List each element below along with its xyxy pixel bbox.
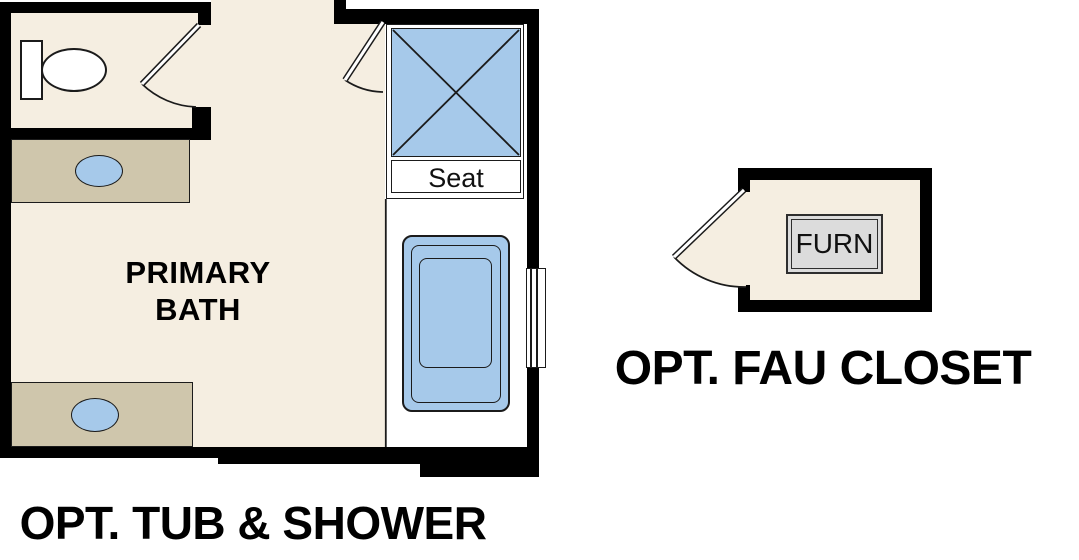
shower-door-arc (345, 80, 383, 92)
closet-door (674, 190, 746, 287)
room-label-line-1: PRIMARY (98, 254, 298, 291)
room-label-line-2: BATH (98, 291, 298, 328)
shower-x-mark (393, 30, 519, 155)
toilet-door-arc (142, 84, 196, 107)
toilet-door (142, 25, 199, 107)
caption-opt-tub-shower: OPT. TUB & SHOWER (7, 496, 499, 550)
caption-opt-fau-closet: OPT. FAU CLOSET (595, 341, 1051, 396)
floor-plan-diagram: Seat FURN (0, 0, 1079, 560)
room-label-primary-bath: PRIMARY BATH (98, 254, 298, 328)
closet-door-swing-area (674, 190, 746, 287)
shower-door (345, 22, 383, 92)
